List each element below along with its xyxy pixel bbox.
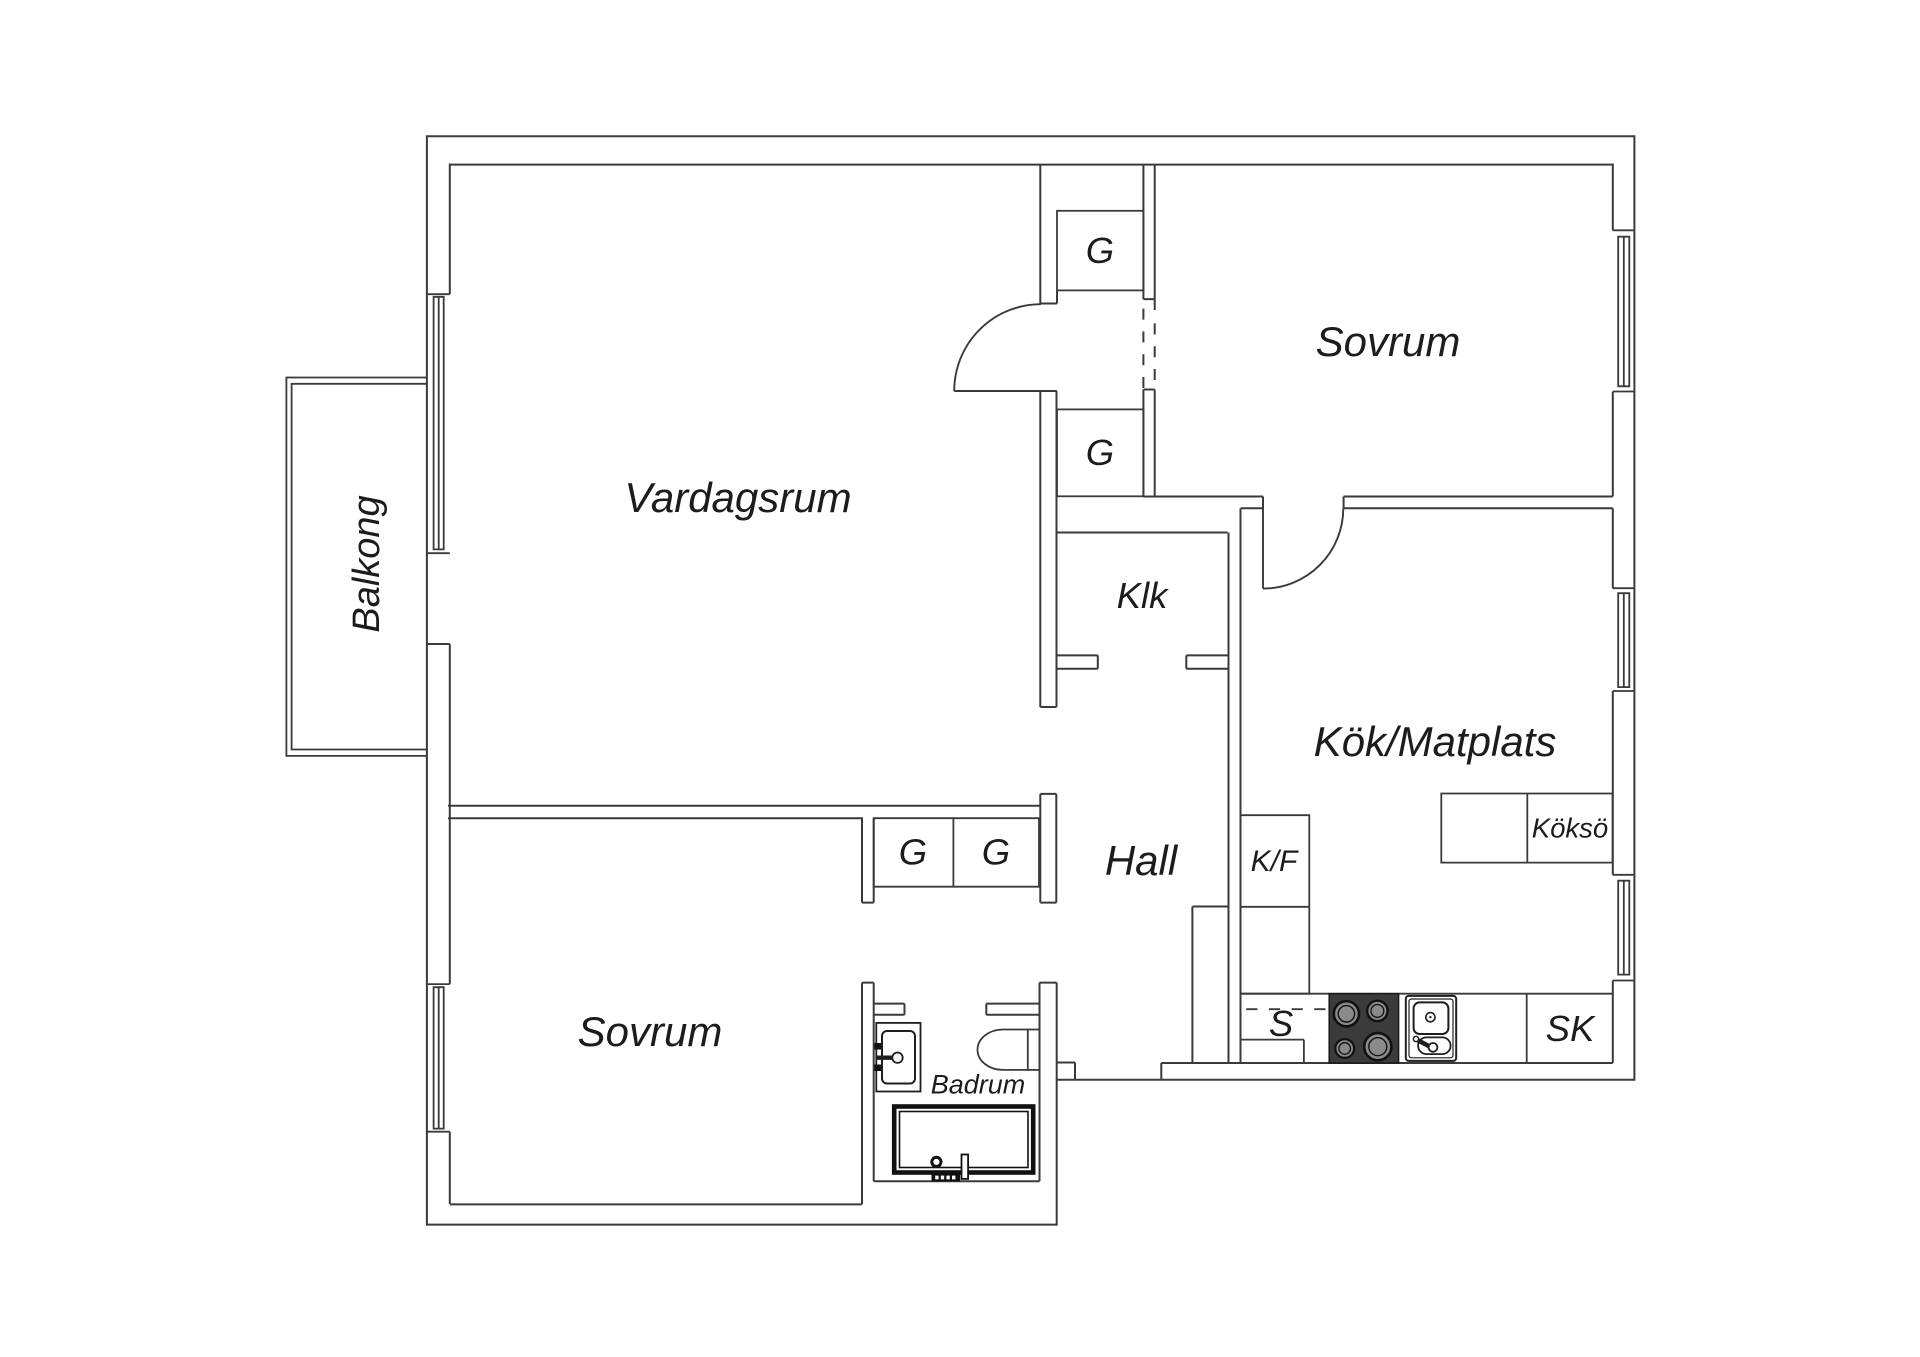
svg-text:G: G — [899, 832, 927, 873]
svg-text:Klk: Klk — [1117, 575, 1169, 616]
svg-text:G: G — [1086, 230, 1114, 271]
svg-text:G: G — [982, 832, 1010, 873]
svg-text:SK: SK — [1546, 1008, 1596, 1049]
svg-text:S: S — [1269, 1003, 1293, 1044]
svg-text:Kök/Matplats: Kök/Matplats — [1314, 718, 1557, 765]
svg-text:K/F: K/F — [1251, 845, 1299, 878]
svg-text:Sovrum: Sovrum — [578, 1008, 723, 1055]
svg-text:Balkong: Balkong — [346, 495, 388, 632]
svg-text:Badrum: Badrum — [931, 1070, 1026, 1100]
svg-text:Köksö: Köksö — [1532, 813, 1608, 844]
svg-text:G: G — [1086, 432, 1114, 473]
svg-text:Vardagsrum: Vardagsrum — [624, 474, 851, 521]
svg-text:Hall: Hall — [1105, 837, 1179, 884]
svg-text:Sovrum: Sovrum — [1316, 318, 1461, 365]
